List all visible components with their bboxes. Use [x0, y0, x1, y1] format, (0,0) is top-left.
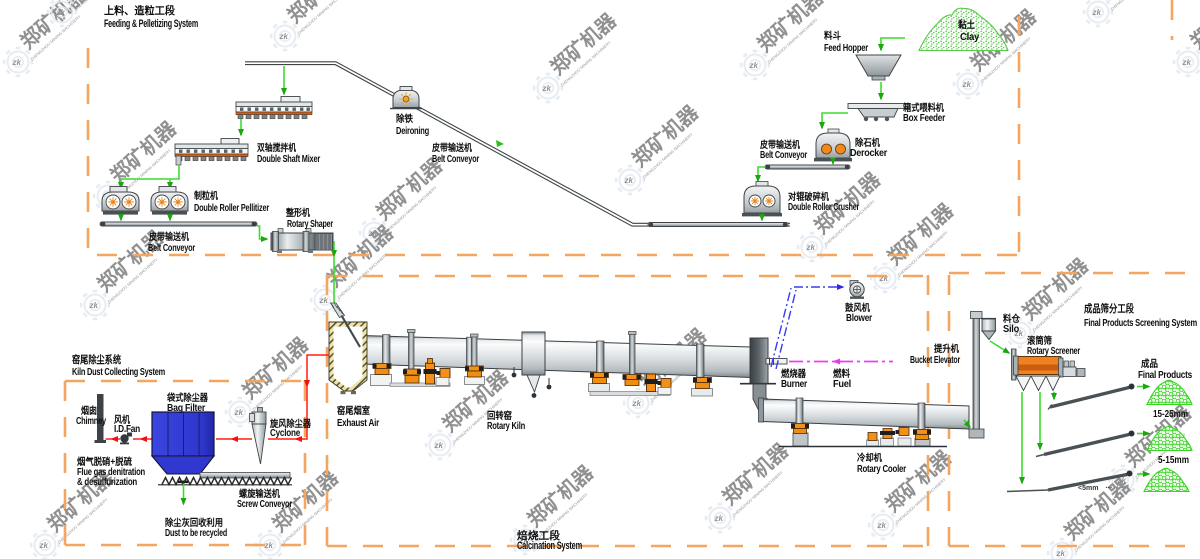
- svg-text:窑尾除尘系统: 窑尾除尘系统: [72, 353, 121, 366]
- svg-text:Exhaust Air: Exhaust Air: [337, 417, 379, 429]
- svg-text:Belt Conveyor: Belt Conveyor: [432, 153, 479, 165]
- svg-text:Screw Conveyor: Screw Conveyor: [237, 498, 292, 510]
- svg-text:Double Shaft Mixer: Double Shaft Mixer: [257, 153, 320, 165]
- svg-text:<5mm ···: <5mm ···: [1078, 485, 1112, 492]
- svg-text:Double Roller Pellitizer: Double Roller Pellitizer: [194, 202, 269, 214]
- svg-text:Chimney: Chimney: [76, 415, 106, 427]
- svg-text:Rotary Screener: Rotary Screener: [1027, 345, 1080, 357]
- svg-text:Fuel: Fuel: [833, 378, 851, 390]
- svg-text:Box Feeder: Box Feeder: [903, 112, 945, 124]
- svg-text:Belt Conveyor: Belt Conveyor: [760, 149, 807, 161]
- svg-text:Bucket Elevator: Bucket Elevator: [910, 354, 960, 366]
- svg-text:Burner: Burner: [781, 378, 807, 390]
- svg-text:15-25mm: 15-25mm: [1153, 408, 1188, 420]
- svg-text:Final Products: Final Products: [1138, 369, 1192, 381]
- svg-text:Deironing: Deironing: [396, 125, 429, 137]
- svg-text:黏土: 黏土: [958, 18, 975, 31]
- svg-text:料斗: 料斗: [824, 29, 841, 42]
- svg-text:I.D.Fan: I.D.Fan: [114, 423, 140, 435]
- svg-text:Final Products Screening Syste: Final Products Screening System: [1084, 317, 1197, 329]
- svg-text:Silo: Silo: [1003, 323, 1019, 335]
- svg-text:Dust to be recycled: Dust to be recycled: [165, 527, 227, 539]
- svg-text:Kiln Dust Collecting System: Kiln Dust Collecting System: [72, 366, 165, 378]
- svg-text:Blower: Blower: [846, 312, 872, 324]
- svg-text:窑尾烟室: 窑尾烟室: [337, 404, 370, 417]
- svg-text:Derocker: Derocker: [850, 147, 887, 159]
- svg-text:Cyclone: Cyclone: [270, 427, 300, 439]
- svg-text:Feeding & Pelletizing System: Feeding & Pelletizing System: [104, 18, 198, 30]
- svg-text:Rotary Cooler: Rotary Cooler: [857, 463, 906, 475]
- svg-text:Clay: Clay: [960, 31, 979, 43]
- svg-text:除铁: 除铁: [396, 112, 413, 125]
- svg-text:Calcination System: Calcination System: [517, 540, 582, 552]
- svg-text:Rotary Kiln: Rotary Kiln: [487, 420, 525, 432]
- svg-text:成品筛分工段: 成品筛分工段: [1084, 302, 1134, 315]
- svg-text:Bag Filter: Bag Filter: [167, 402, 205, 414]
- svg-text:Feed Hopper: Feed Hopper: [824, 42, 868, 54]
- svg-text:Belt Conveyor: Belt Conveyor: [148, 242, 195, 254]
- svg-text:制粒机: 制粒机: [194, 189, 218, 202]
- svg-text:5-15mm: 5-15mm: [1158, 454, 1189, 466]
- svg-text:Rotary Shaper: Rotary Shaper: [287, 218, 333, 230]
- svg-text:Double Roller Crusher: Double Roller Crusher: [788, 201, 859, 213]
- svg-text:& desulfurization: & desulfurization: [77, 476, 137, 488]
- svg-text:上料、造粒工段: 上料、造粒工段: [104, 4, 175, 17]
